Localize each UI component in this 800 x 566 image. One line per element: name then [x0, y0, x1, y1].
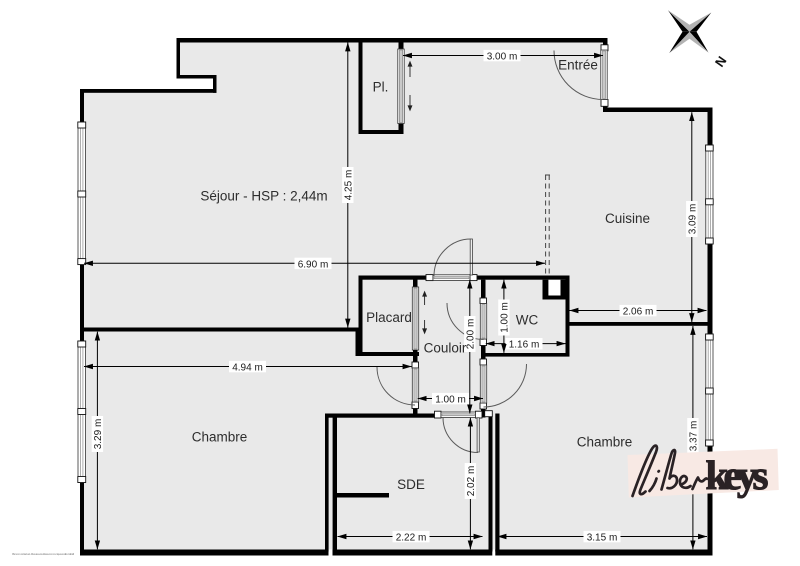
svg-text:Pl.: Pl.	[373, 80, 389, 95]
svg-text:Placard: Placard	[366, 310, 412, 325]
svg-text:1.00 m: 1.00 m	[435, 395, 466, 406]
svg-text:2.00 m: 2.00 m	[466, 319, 477, 350]
svg-text:3.37 m: 3.37 m	[689, 421, 700, 452]
svg-text:Couloir: Couloir	[424, 341, 467, 356]
svg-text:3.29 m: 3.29 m	[93, 419, 104, 450]
svg-text:Séjour - HSP : 2,44m: Séjour - HSP : 2,44m	[200, 189, 327, 204]
svg-text:Entrée: Entrée	[558, 58, 598, 73]
svg-text:Cuisine: Cuisine	[605, 211, 650, 226]
svg-text:3.09 m: 3.09 m	[688, 204, 699, 235]
svg-text:WC: WC	[516, 313, 539, 328]
svg-text:3.00 m: 3.00 m	[487, 52, 518, 63]
svg-text:Plan non contractuel - Mesures: Plan non contractuel - Mesures et surfac…	[12, 552, 74, 556]
svg-text:keys: keys	[706, 452, 769, 498]
svg-text:4.25 m: 4.25 m	[344, 170, 355, 201]
svg-text:6.90 m: 6.90 m	[298, 259, 329, 270]
svg-text:1.00 m: 1.00 m	[500, 302, 511, 333]
svg-text:Chambre: Chambre	[577, 435, 633, 450]
svg-text:N: N	[712, 53, 730, 69]
svg-text:Chambre: Chambre	[192, 430, 248, 445]
svg-text:SDE: SDE	[397, 477, 425, 492]
svg-text:2.22 m: 2.22 m	[396, 533, 427, 544]
svg-text:3.15 m: 3.15 m	[587, 533, 618, 544]
svg-text:2.02 m: 2.02 m	[466, 466, 477, 497]
svg-text:1.16 m: 1.16 m	[509, 340, 540, 351]
svg-text:4.94 m: 4.94 m	[232, 363, 263, 374]
svg-text:2.06 m: 2.06 m	[623, 307, 654, 318]
